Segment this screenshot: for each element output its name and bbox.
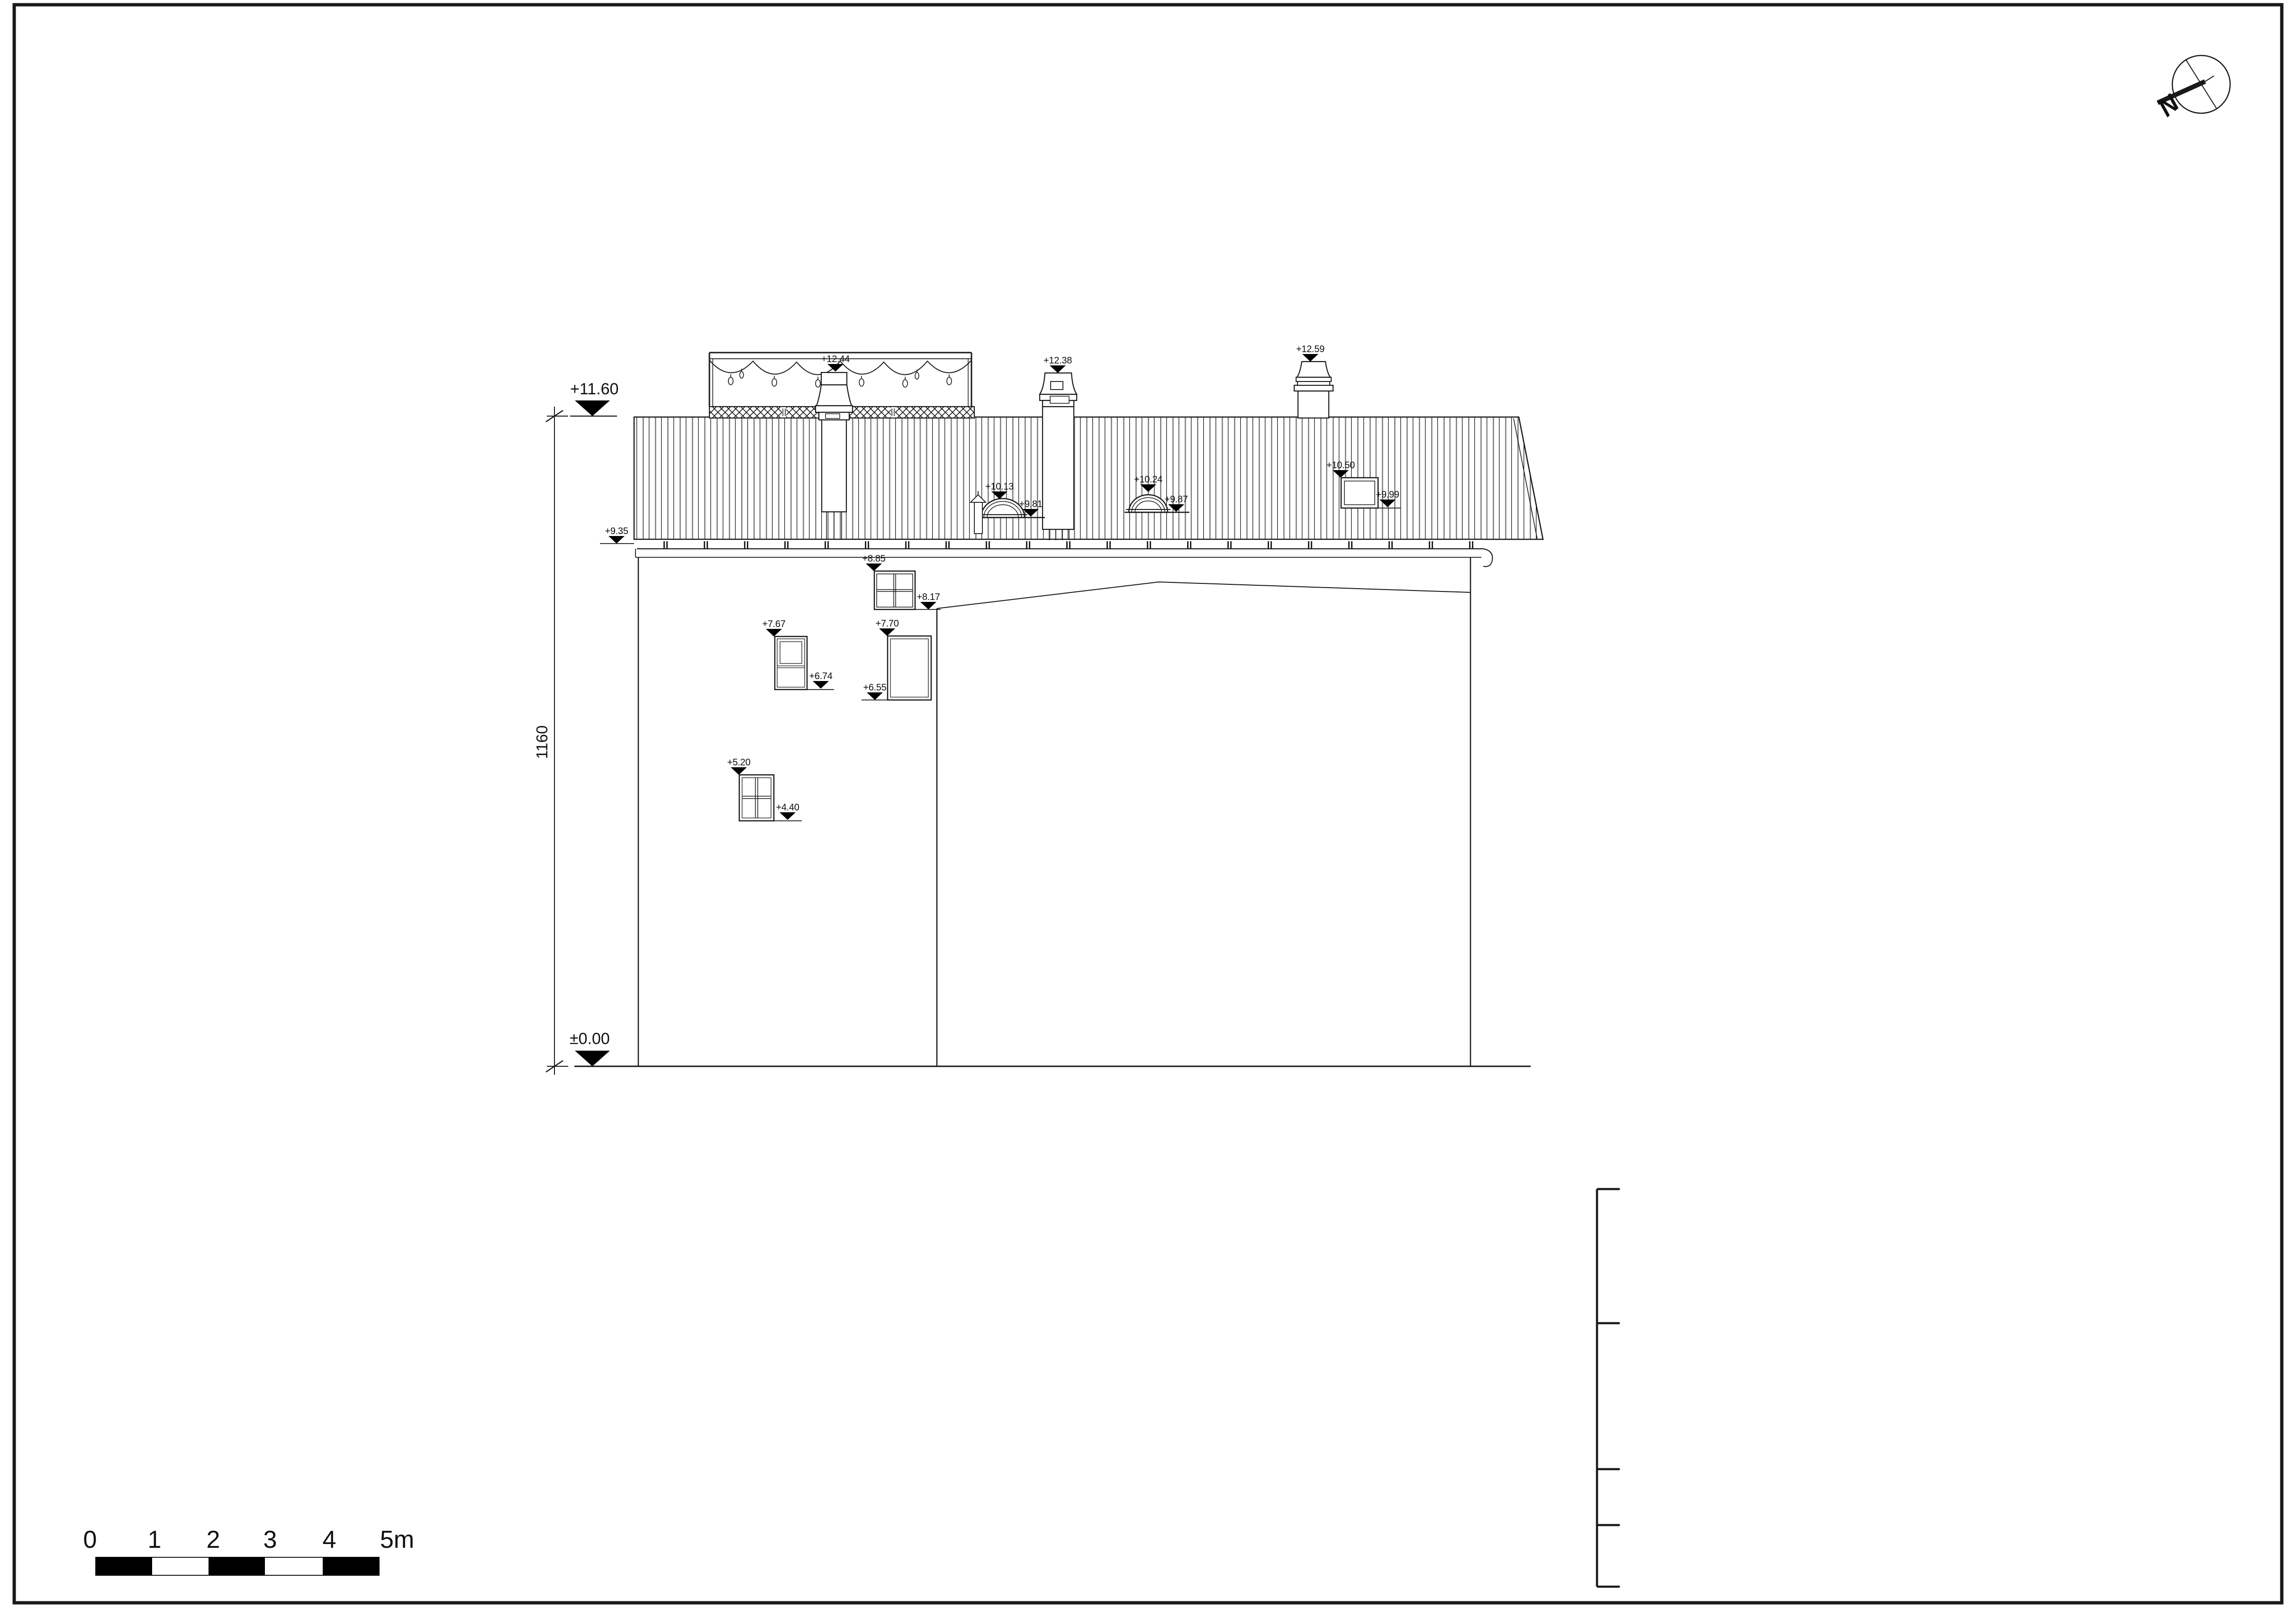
vent-shaft	[974, 502, 982, 534]
chimney-cap-body	[1297, 362, 1330, 377]
sheet-border	[14, 5, 2282, 1603]
level-triangle	[575, 1051, 610, 1066]
window-frame	[888, 636, 931, 700]
gutter-end-hook	[1483, 549, 1492, 566]
scale-bar: 0 1 2 3 4 5m	[83, 1526, 415, 1575]
level-triangle	[731, 767, 747, 775]
level-label: +5.20	[727, 757, 750, 768]
chimney-lip	[1294, 385, 1333, 391]
level-label: +10.13	[985, 481, 1014, 492]
roof	[634, 417, 1543, 566]
height-dimension: 1160	[533, 407, 568, 1075]
level-label: ±0.00	[570, 1030, 610, 1048]
level-triangle	[813, 681, 829, 689]
level-triangle	[879, 628, 895, 636]
level-marker-chimney-mid: +12.38	[1044, 355, 1072, 373]
chimney-band	[1296, 377, 1331, 382]
scale-tick-label: 5m	[380, 1526, 414, 1553]
rear-building-roofline	[937, 582, 1470, 609]
level-label: +9.35	[605, 526, 628, 536]
level-label: +10.50	[1326, 460, 1355, 471]
scale-tick-label: 2	[207, 1526, 220, 1553]
chimney-cap-body	[1040, 373, 1077, 394]
level-marker-window-right-sill: +6.55	[863, 682, 886, 700]
chimney-collar-detail	[1050, 396, 1069, 403]
building-walls	[574, 557, 1531, 1066]
level-marker-attic-window-sill: +8.17	[917, 592, 940, 609]
scale-bar-segment	[209, 1557, 265, 1575]
level-triangle	[575, 400, 610, 416]
chimney-right	[1294, 362, 1333, 418]
fascia-band	[637, 539, 1483, 549]
level-label: +6.55	[863, 682, 886, 693]
level-triangle	[866, 563, 882, 571]
chimney-mid	[1040, 373, 1077, 540]
level-triangle	[608, 536, 625, 544]
level-marker-chimney-right: +12.59	[1296, 344, 1325, 362]
fragment-ticks	[1597, 1189, 1620, 1587]
level-label: +8.85	[862, 554, 885, 564]
chimney-shaft	[1298, 391, 1329, 418]
level-marker-window-left-sill: +6.74	[809, 671, 832, 689]
level-marker-eaves: +9.35	[600, 526, 634, 544]
adjacent-drawing-fragment	[1597, 1189, 1620, 1587]
level-label: +9.87	[1164, 494, 1188, 505]
scale-bar-segment	[96, 1557, 152, 1575]
level-marker-window-right-top: +7.70	[875, 618, 898, 636]
chimney-shaft	[1043, 407, 1074, 529]
level-marker-attic-window-top: +8.85	[862, 554, 885, 571]
level-marker-window-left-top: +7.67	[762, 619, 785, 636]
chimney-collar	[816, 406, 853, 412]
level-marker-top: +11.60	[570, 380, 618, 416]
level-label: +11.60	[570, 380, 618, 398]
skylight-frame	[1341, 478, 1378, 508]
level-marker-chimney-terrace: +12.44	[821, 354, 850, 372]
level-label: +12.44	[821, 354, 850, 364]
level-label: +12.59	[1296, 344, 1325, 354]
level-marker-lower-window-sill: +4.40	[776, 802, 799, 820]
chimney-cap	[821, 372, 847, 385]
level-label: +7.70	[875, 618, 898, 629]
level-label: +9.81	[1019, 499, 1042, 509]
level-triangle	[1302, 354, 1318, 362]
elevation-drawing-sheet: N	[0, 0, 2296, 1608]
chimney-shaft	[822, 419, 846, 512]
level-triangle	[766, 629, 782, 636]
scale-bar-segment	[323, 1557, 379, 1575]
level-label: +10.24	[1134, 474, 1162, 485]
level-label: +9.99	[1376, 490, 1399, 500]
level-label: +6.74	[809, 671, 832, 681]
window-frame	[739, 775, 774, 821]
window-frame	[775, 636, 807, 690]
chimney-neck	[817, 385, 852, 406]
elevation-drawing: N	[0, 0, 2296, 1608]
dimension-value: 1160	[533, 726, 551, 759]
window-frame	[874, 571, 915, 609]
roof-hatch	[634, 417, 1543, 539]
scale-tick-label: 3	[263, 1526, 277, 1553]
scale-tick-label: 4	[323, 1526, 336, 1553]
level-triangle	[1050, 365, 1066, 373]
chimney-band	[1298, 382, 1330, 385]
level-marker-lower-window-top: +5.20	[727, 757, 750, 775]
level-label: +4.40	[776, 802, 799, 813]
level-marker-ground: ±0.00	[570, 1030, 610, 1066]
scale-tick-label: 1	[148, 1526, 162, 1553]
north-arrow: N	[2153, 55, 2230, 122]
north-arrow-tail	[2205, 76, 2214, 82]
level-label: +12.38	[1044, 355, 1072, 366]
level-triangle	[867, 692, 883, 700]
level-label: +8.17	[917, 592, 940, 602]
level-triangle	[780, 812, 796, 820]
level-triangle	[920, 602, 936, 609]
scale-tick-label: 0	[83, 1526, 97, 1553]
level-label: +7.67	[762, 619, 785, 629]
